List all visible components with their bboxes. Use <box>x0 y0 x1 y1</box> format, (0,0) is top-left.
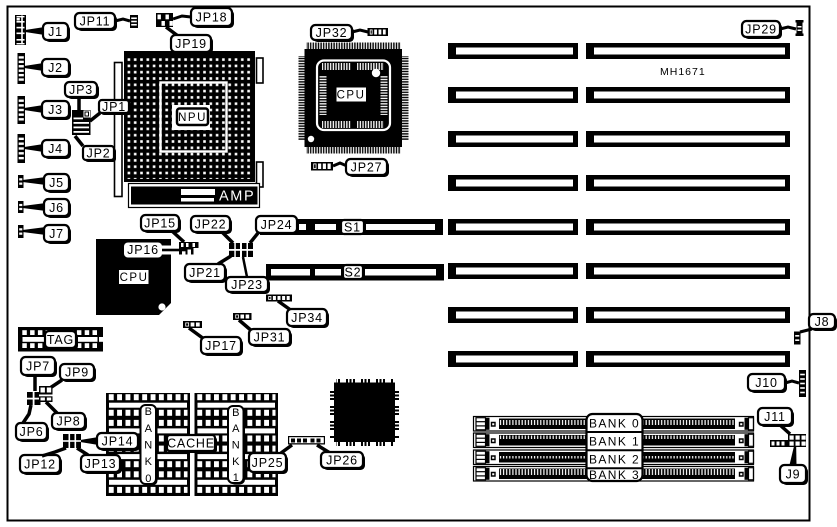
svg-text:JP21: JP21 <box>189 266 221 280</box>
svg-text:JP15: JP15 <box>144 216 176 230</box>
svg-text:J11: J11 <box>764 410 786 424</box>
svg-text:JP13: JP13 <box>85 457 117 471</box>
svg-text:J6: J6 <box>49 201 64 215</box>
svg-text:JP26: JP26 <box>326 453 358 467</box>
svg-text:JP34: JP34 <box>291 311 323 325</box>
svg-text:J2: J2 <box>48 61 63 75</box>
svg-text:JP31: JP31 <box>254 330 286 344</box>
svg-text:JP8: JP8 <box>57 414 81 428</box>
svg-text:JP16: JP16 <box>127 243 159 257</box>
svg-text:BANK 1: BANK 1 <box>589 435 640 449</box>
svg-text:MH1671: MH1671 <box>660 66 706 78</box>
svg-text:JP19: JP19 <box>175 37 207 51</box>
svg-text:J1: J1 <box>48 25 63 39</box>
svg-text:J9: J9 <box>786 467 801 481</box>
svg-text:JP6: JP6 <box>20 425 44 439</box>
svg-text:JP17: JP17 <box>205 339 237 353</box>
svg-text:JP11: JP11 <box>80 14 111 28</box>
svg-text:CPU: CPU <box>337 90 366 102</box>
svg-text:JP12: JP12 <box>24 457 56 471</box>
svg-text:N: N <box>144 440 152 452</box>
svg-text:JP24: JP24 <box>261 218 293 232</box>
svg-text:JP9: JP9 <box>65 365 89 379</box>
svg-text:0: 0 <box>145 473 151 485</box>
svg-text:N: N <box>232 440 240 452</box>
svg-text:BANK 0: BANK 0 <box>589 417 640 431</box>
svg-text:S1: S1 <box>344 220 361 234</box>
svg-text:JP14: JP14 <box>102 434 134 448</box>
svg-text:J5: J5 <box>49 176 64 190</box>
svg-text:J8: J8 <box>815 315 830 329</box>
svg-text:JP3: JP3 <box>69 83 93 97</box>
svg-text:JP7: JP7 <box>26 359 50 373</box>
svg-text:A: A <box>145 423 153 435</box>
svg-text:JP18: JP18 <box>196 10 228 24</box>
svg-text:BANK 2: BANK 2 <box>589 453 640 467</box>
svg-text:JP27: JP27 <box>351 160 383 174</box>
svg-text:JP22: JP22 <box>195 217 227 231</box>
svg-text:J3: J3 <box>48 103 63 117</box>
svg-text:J4: J4 <box>48 142 63 156</box>
svg-text:J7: J7 <box>49 227 64 241</box>
svg-text:JP1: JP1 <box>102 100 126 114</box>
svg-text:K: K <box>145 456 153 468</box>
svg-text:TAG: TAG <box>47 333 74 347</box>
svg-text:BANK 3: BANK 3 <box>589 468 640 482</box>
svg-text:JP29: JP29 <box>745 22 777 36</box>
svg-text:NPU: NPU <box>178 112 207 124</box>
svg-text:CACHE: CACHE <box>167 436 215 450</box>
svg-text:AMP: AMP <box>219 189 255 205</box>
svg-text:JP23: JP23 <box>231 278 263 292</box>
svg-text:B: B <box>232 407 239 419</box>
svg-text:A: A <box>232 423 240 435</box>
svg-text:S2: S2 <box>345 265 362 279</box>
svg-text:JP25: JP25 <box>252 456 284 470</box>
svg-text:K: K <box>232 456 240 468</box>
svg-text:J10: J10 <box>755 376 778 390</box>
svg-text:1: 1 <box>233 472 239 484</box>
svg-text:JP2: JP2 <box>87 146 111 160</box>
svg-text:B: B <box>145 406 152 418</box>
svg-text:CPU: CPU <box>120 272 149 284</box>
svg-text:JP32: JP32 <box>316 26 348 40</box>
